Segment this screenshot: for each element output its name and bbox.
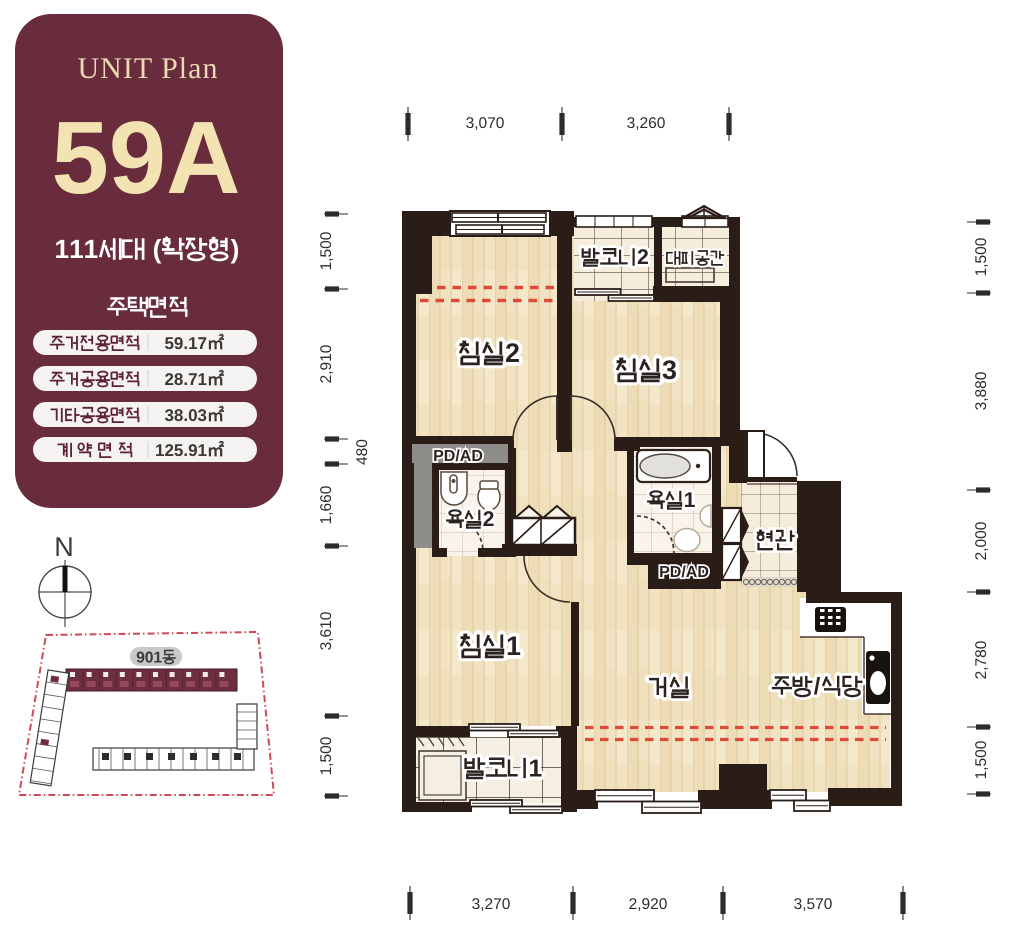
svg-text:1,500: 1,500 <box>973 237 990 276</box>
svg-text:N: N <box>54 532 74 562</box>
svg-text:480: 480 <box>354 439 371 465</box>
svg-text:/: / <box>814 673 821 699</box>
svg-text:2,000: 2,000 <box>973 521 990 560</box>
svg-text:1,500: 1,500 <box>973 740 990 779</box>
svg-text:59.17㎡: 59.17㎡ <box>164 333 224 353</box>
svg-text:1: 1 <box>69 234 84 264</box>
svg-text:1: 1 <box>54 234 69 264</box>
svg-text:0: 0 <box>145 649 154 666</box>
svg-text:1: 1 <box>528 755 542 782</box>
svg-text:3: 3 <box>662 355 677 385</box>
svg-text:2,780: 2,780 <box>973 640 990 679</box>
svg-text:28.71㎡: 28.71㎡ <box>164 369 224 389</box>
svg-text:125.91㎡: 125.91㎡ <box>155 440 224 460</box>
svg-text:1: 1 <box>684 488 696 512</box>
svg-text:2,920: 2,920 <box>629 896 668 913</box>
svg-text:3,270: 3,270 <box>472 896 511 913</box>
svg-text:3,260: 3,260 <box>627 115 666 132</box>
svg-text:PD/AD: PD/AD <box>433 448 483 465</box>
svg-text:1,500: 1,500 <box>318 231 335 270</box>
svg-text:(: ( <box>153 234 162 264</box>
svg-text:1,660: 1,660 <box>318 485 335 524</box>
svg-text:59A: 59A <box>52 100 241 215</box>
svg-text:2,910: 2,910 <box>318 344 335 383</box>
svg-text:UNIT Plan: UNIT Plan <box>78 52 219 85</box>
svg-text:1,500: 1,500 <box>318 736 335 775</box>
svg-text:PD/AD: PD/AD <box>659 564 709 581</box>
svg-text:2: 2 <box>483 507 495 531</box>
svg-text:3,610: 3,610 <box>318 611 335 650</box>
svg-text:1: 1 <box>153 649 162 666</box>
svg-text:38.03㎡: 38.03㎡ <box>164 405 224 425</box>
svg-text:2: 2 <box>505 338 520 368</box>
svg-text:3,880: 3,880 <box>973 371 990 410</box>
svg-text:2: 2 <box>637 245 649 269</box>
svg-text:): ) <box>231 234 240 264</box>
svg-text:1: 1 <box>506 631 521 661</box>
svg-text:3,070: 3,070 <box>466 115 505 132</box>
svg-text:1: 1 <box>84 234 99 264</box>
svg-text:3,570: 3,570 <box>794 896 833 913</box>
